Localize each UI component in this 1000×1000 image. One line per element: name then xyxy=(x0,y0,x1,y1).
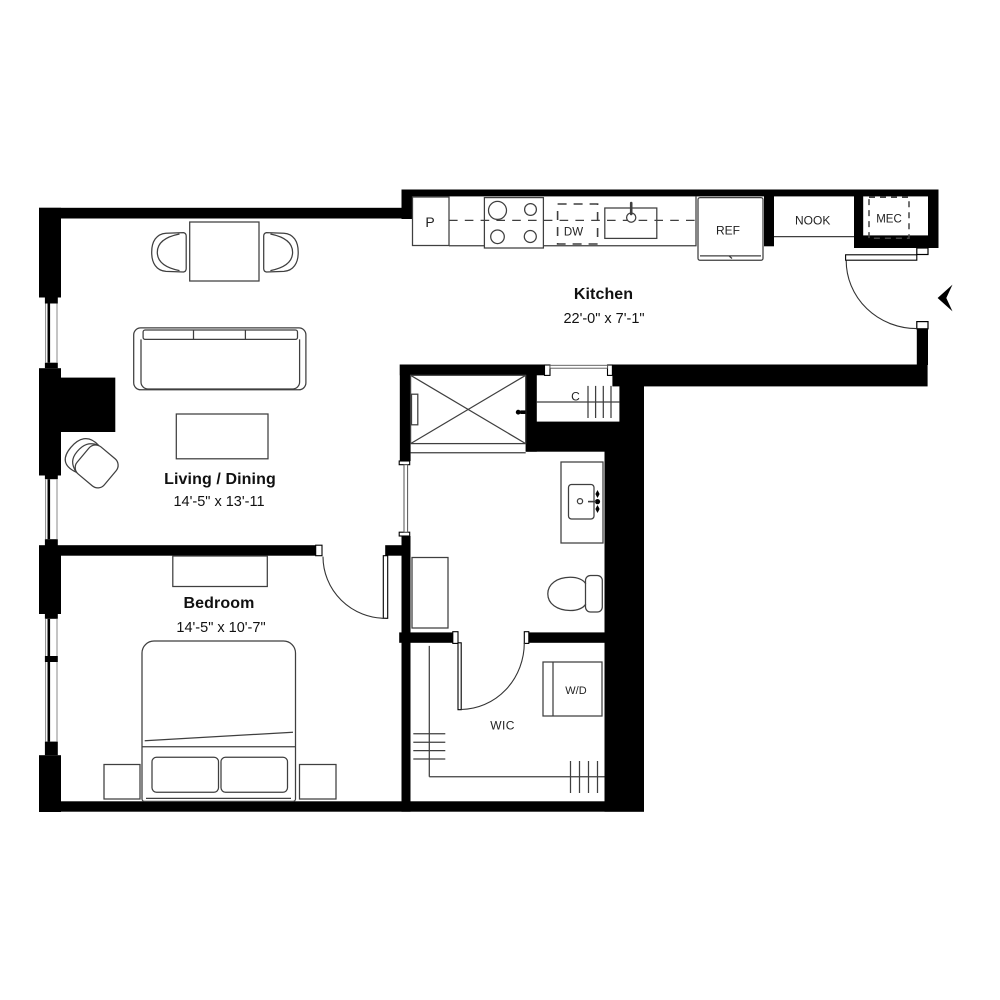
svg-text:C: C xyxy=(571,390,580,404)
svg-text:22'-0" x 7'-1": 22'-0" x 7'-1" xyxy=(563,311,644,327)
svg-text:Living / Dining: Living / Dining xyxy=(164,471,276,488)
svg-text:Bedroom: Bedroom xyxy=(184,595,255,612)
svg-text:REF: REF xyxy=(716,224,740,238)
svg-text:P: P xyxy=(425,214,434,230)
svg-text:14'-5" x 10'-7": 14'-5" x 10'-7" xyxy=(176,620,265,636)
svg-text:Kitchen: Kitchen xyxy=(574,286,633,303)
svg-text:MEC: MEC xyxy=(876,214,902,226)
svg-text:WIC: WIC xyxy=(490,719,515,733)
svg-text:DW: DW xyxy=(564,227,583,239)
svg-text:W/D: W/D xyxy=(565,685,586,697)
svg-text:14'-5" x 13'-11: 14'-5" x 13'-11 xyxy=(173,494,264,510)
svg-text:NOOK: NOOK xyxy=(795,214,830,228)
